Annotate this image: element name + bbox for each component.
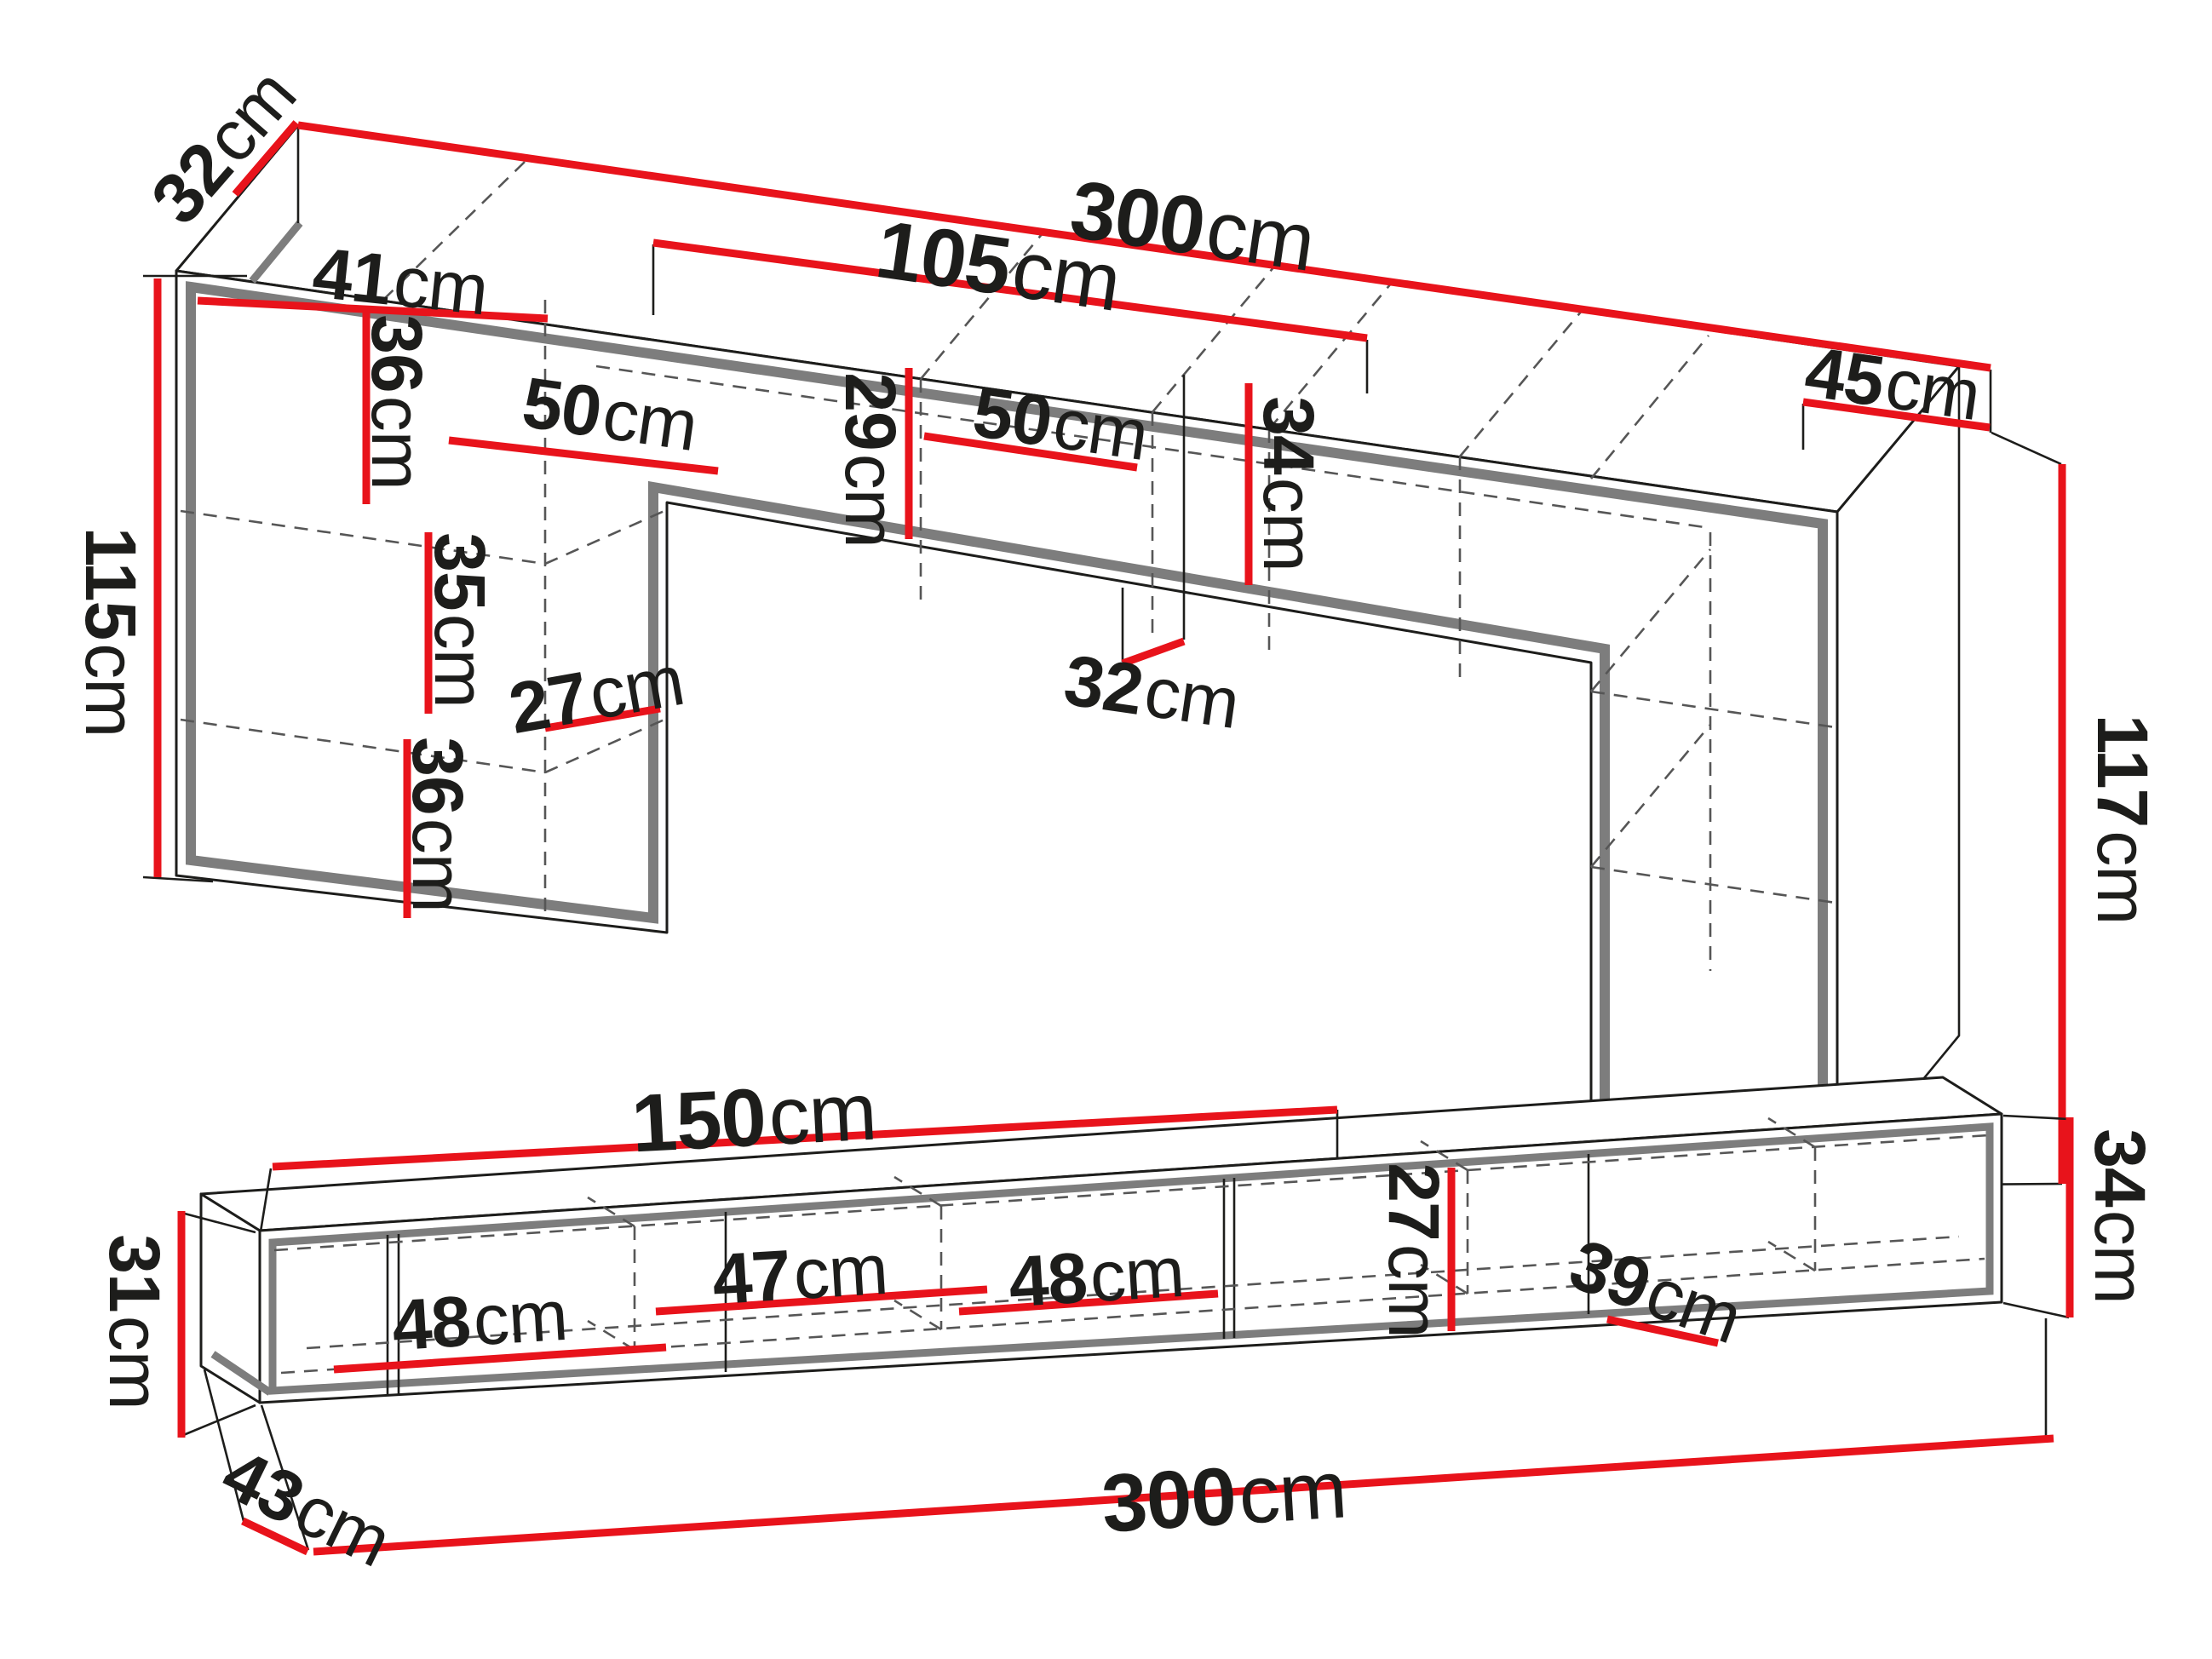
diagram-page: 32cm 300cm 105cm 41cm 36cm 50cm 29cm 50c… <box>0 0 2212 1659</box>
dim-label-depth: 43cm <box>210 1433 403 1582</box>
dim-label-left-height: 115cm <box>71 527 151 738</box>
dim-label-shelf-bottom: 36cm <box>398 737 478 911</box>
dim-label-compartment-1: 48cm <box>390 1275 570 1365</box>
dim-label-compartment-2: 47cm <box>710 1229 890 1319</box>
dim-label-total-width: 300cm <box>1099 1444 1348 1549</box>
dim-label-inner-height: 27cm <box>1374 1162 1454 1337</box>
dim-label-half-width: 150cm <box>629 1065 878 1169</box>
dim-label-bridge-height: 34cm <box>1249 396 1329 571</box>
dim-label-inner-height: 29cm <box>830 372 911 547</box>
furniture-dimension-diagram: 32cm 300cm 105cm 41cm 36cm 50cm 29cm 50c… <box>0 0 2212 1659</box>
tv-stand-drawing: 150cm 31cm 48cm 47cm 48cm 27cm 39cm 34cm… <box>95 1065 2160 1582</box>
dim-label-shelf-middle: 35cm <box>420 532 500 707</box>
dim-label-bridge-depth: 32cm <box>1060 640 1244 743</box>
dim-label-left-height: 31cm <box>95 1234 175 1409</box>
dim-label-right-height: 117cm <box>2083 715 2163 925</box>
dim-label-right-height: 34cm <box>2080 1128 2160 1303</box>
wall-unit-drawing: 32cm 300cm 105cm 41cm 36cm 50cm 29cm 50c… <box>71 55 2163 1185</box>
dim-label-shelf-top: 36cm <box>357 314 437 489</box>
dim-label-compartment-3: 48cm <box>1007 1231 1186 1322</box>
